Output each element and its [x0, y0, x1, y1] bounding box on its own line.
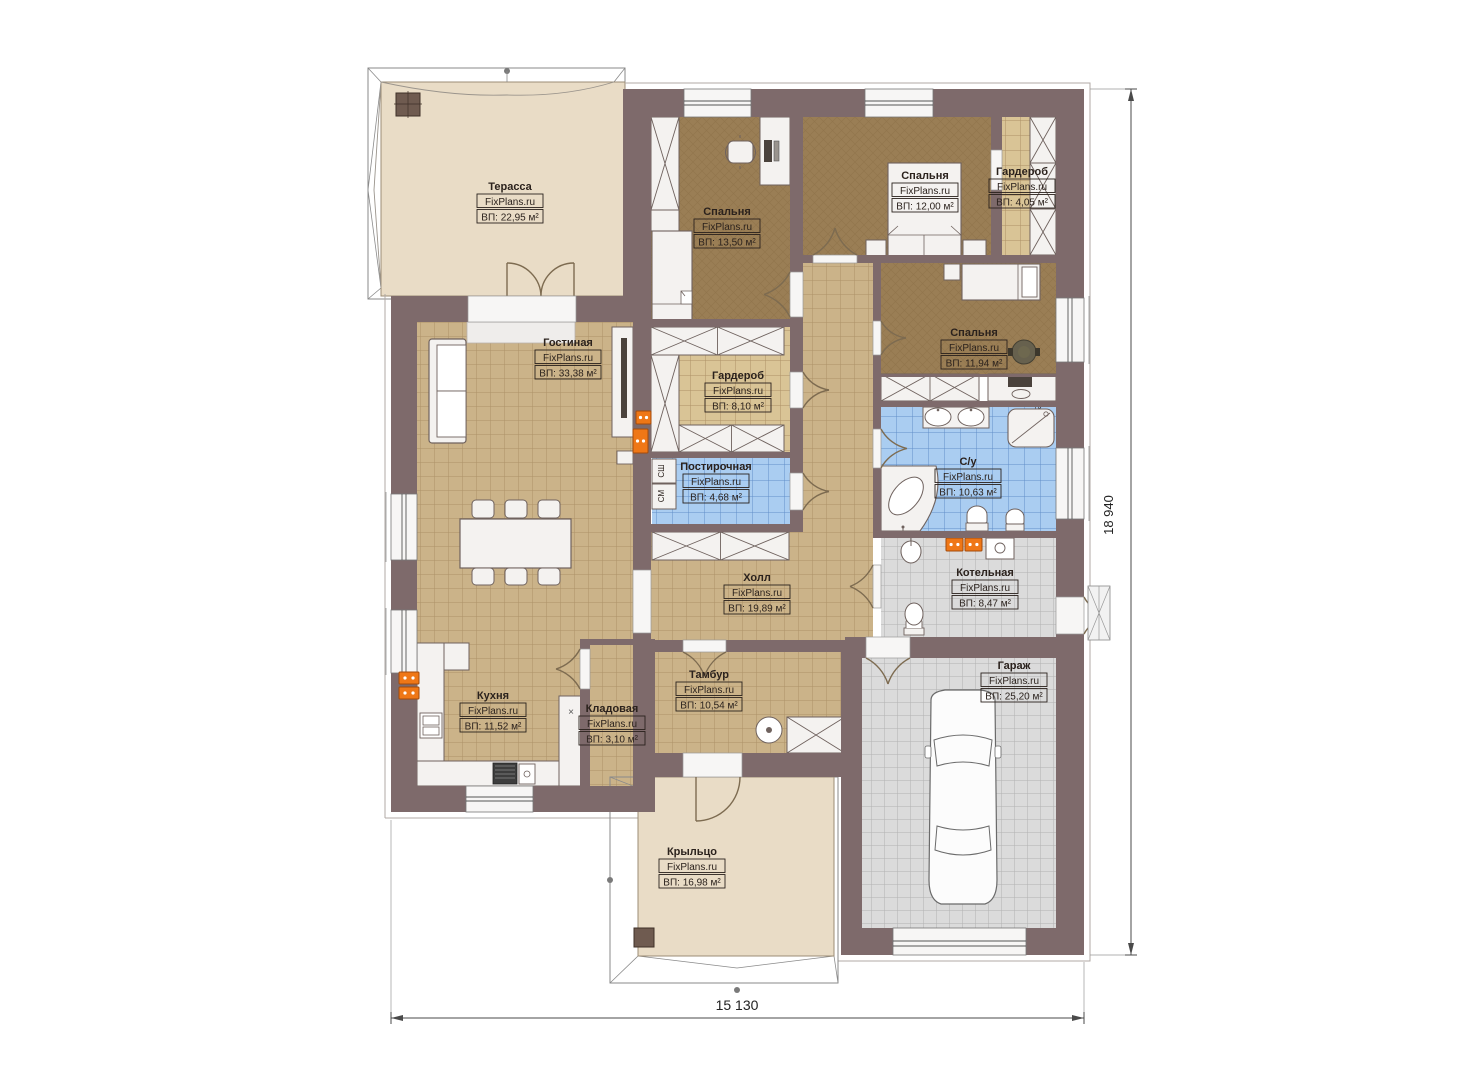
- svg-text:СМ: СМ: [657, 489, 666, 502]
- svg-text:FixPlans.ru: FixPlans.ru: [949, 343, 999, 354]
- svg-text:ВП: 19,89 м²: ВП: 19,89 м²: [728, 604, 786, 615]
- svg-text:ВП: 4,05 м²: ВП: 4,05 м²: [996, 198, 1049, 209]
- svg-text:FixPlans.ru: FixPlans.ru: [691, 477, 741, 488]
- svg-text:Гардероб: Гардероб: [712, 370, 764, 382]
- svg-text:FixPlans.ru: FixPlans.ru: [702, 222, 752, 233]
- svg-text:×: ×: [568, 707, 574, 718]
- svg-text:ВП: 12,00 м²: ВП: 12,00 м²: [896, 202, 954, 213]
- svg-text:18 940: 18 940: [1101, 495, 1116, 535]
- svg-text:ВП: 22,95 м²: ВП: 22,95 м²: [481, 213, 539, 224]
- svg-text:FixPlans.ru: FixPlans.ru: [667, 862, 717, 873]
- svg-text:ВП: 8,47 м²: ВП: 8,47 м²: [959, 599, 1012, 610]
- svg-text:FixPlans.ru: FixPlans.ru: [468, 706, 518, 717]
- svg-text:FixPlans.ru: FixPlans.ru: [989, 676, 1039, 687]
- svg-text:FixPlans.ru: FixPlans.ru: [997, 182, 1047, 193]
- svg-text:Холл: Холл: [743, 572, 771, 584]
- svg-text:Спальня: Спальня: [703, 206, 751, 218]
- svg-text:Кладовая: Кладовая: [586, 703, 639, 715]
- svg-text:Терасса: Терасса: [488, 181, 532, 193]
- svg-text:FixPlans.ru: FixPlans.ru: [485, 197, 535, 208]
- svg-text:FixPlans.ru: FixPlans.ru: [732, 588, 782, 599]
- svg-text:ВП: 11,52 м²: ВП: 11,52 м²: [465, 722, 522, 733]
- svg-text:Кухня: Кухня: [477, 690, 509, 702]
- svg-text:ВП: 10,63 м²: ВП: 10,63 м²: [939, 488, 997, 499]
- svg-text:Котельная: Котельная: [956, 567, 1014, 579]
- svg-text:Постирочная: Постирочная: [680, 461, 751, 473]
- svg-text:ВП: 3,10 м²: ВП: 3,10 м²: [586, 735, 639, 746]
- svg-text:FixPlans.ru: FixPlans.ru: [684, 685, 734, 696]
- svg-text:FixPlans.ru: FixPlans.ru: [543, 353, 593, 364]
- svg-text:СШ: СШ: [657, 464, 666, 477]
- svg-text:FixPlans.ru: FixPlans.ru: [713, 386, 763, 397]
- svg-text:FixPlans.ru: FixPlans.ru: [587, 719, 637, 730]
- svg-text:Гардероб: Гардероб: [996, 166, 1048, 178]
- svg-text:ВП: 13,50 м²: ВП: 13,50 м²: [698, 238, 756, 249]
- svg-text:FixPlans.ru: FixPlans.ru: [943, 472, 993, 483]
- svg-text:15 130: 15 130: [716, 997, 759, 1013]
- svg-text:ВП: 33,38 м²: ВП: 33,38 м²: [539, 369, 597, 380]
- svg-text:FixPlans.ru: FixPlans.ru: [900, 186, 950, 197]
- svg-text:Гостиная: Гостиная: [543, 337, 593, 349]
- svg-text:Спальня: Спальня: [950, 327, 998, 339]
- svg-text:FixPlans.ru: FixPlans.ru: [960, 583, 1010, 594]
- svg-text:Крыльцо: Крыльцо: [667, 846, 717, 858]
- svg-text:ВП: 10,54 м²: ВП: 10,54 м²: [680, 701, 738, 712]
- svg-text:ВП: 16,98 м²: ВП: 16,98 м²: [663, 878, 721, 889]
- svg-text:ВП: 25,20 м²: ВП: 25,20 м²: [985, 692, 1043, 703]
- svg-text:ВП: 11,94 м²: ВП: 11,94 м²: [946, 359, 1003, 370]
- svg-text:ВП: 8,10 м²: ВП: 8,10 м²: [712, 402, 765, 413]
- svg-text:Гараж: Гараж: [998, 660, 1031, 672]
- svg-text:ВП: 4,68 м²: ВП: 4,68 м²: [690, 493, 743, 504]
- svg-text:Тамбур: Тамбур: [689, 669, 729, 681]
- svg-text:Спальня: Спальня: [901, 170, 949, 182]
- svg-text:С/у: С/у: [959, 456, 977, 468]
